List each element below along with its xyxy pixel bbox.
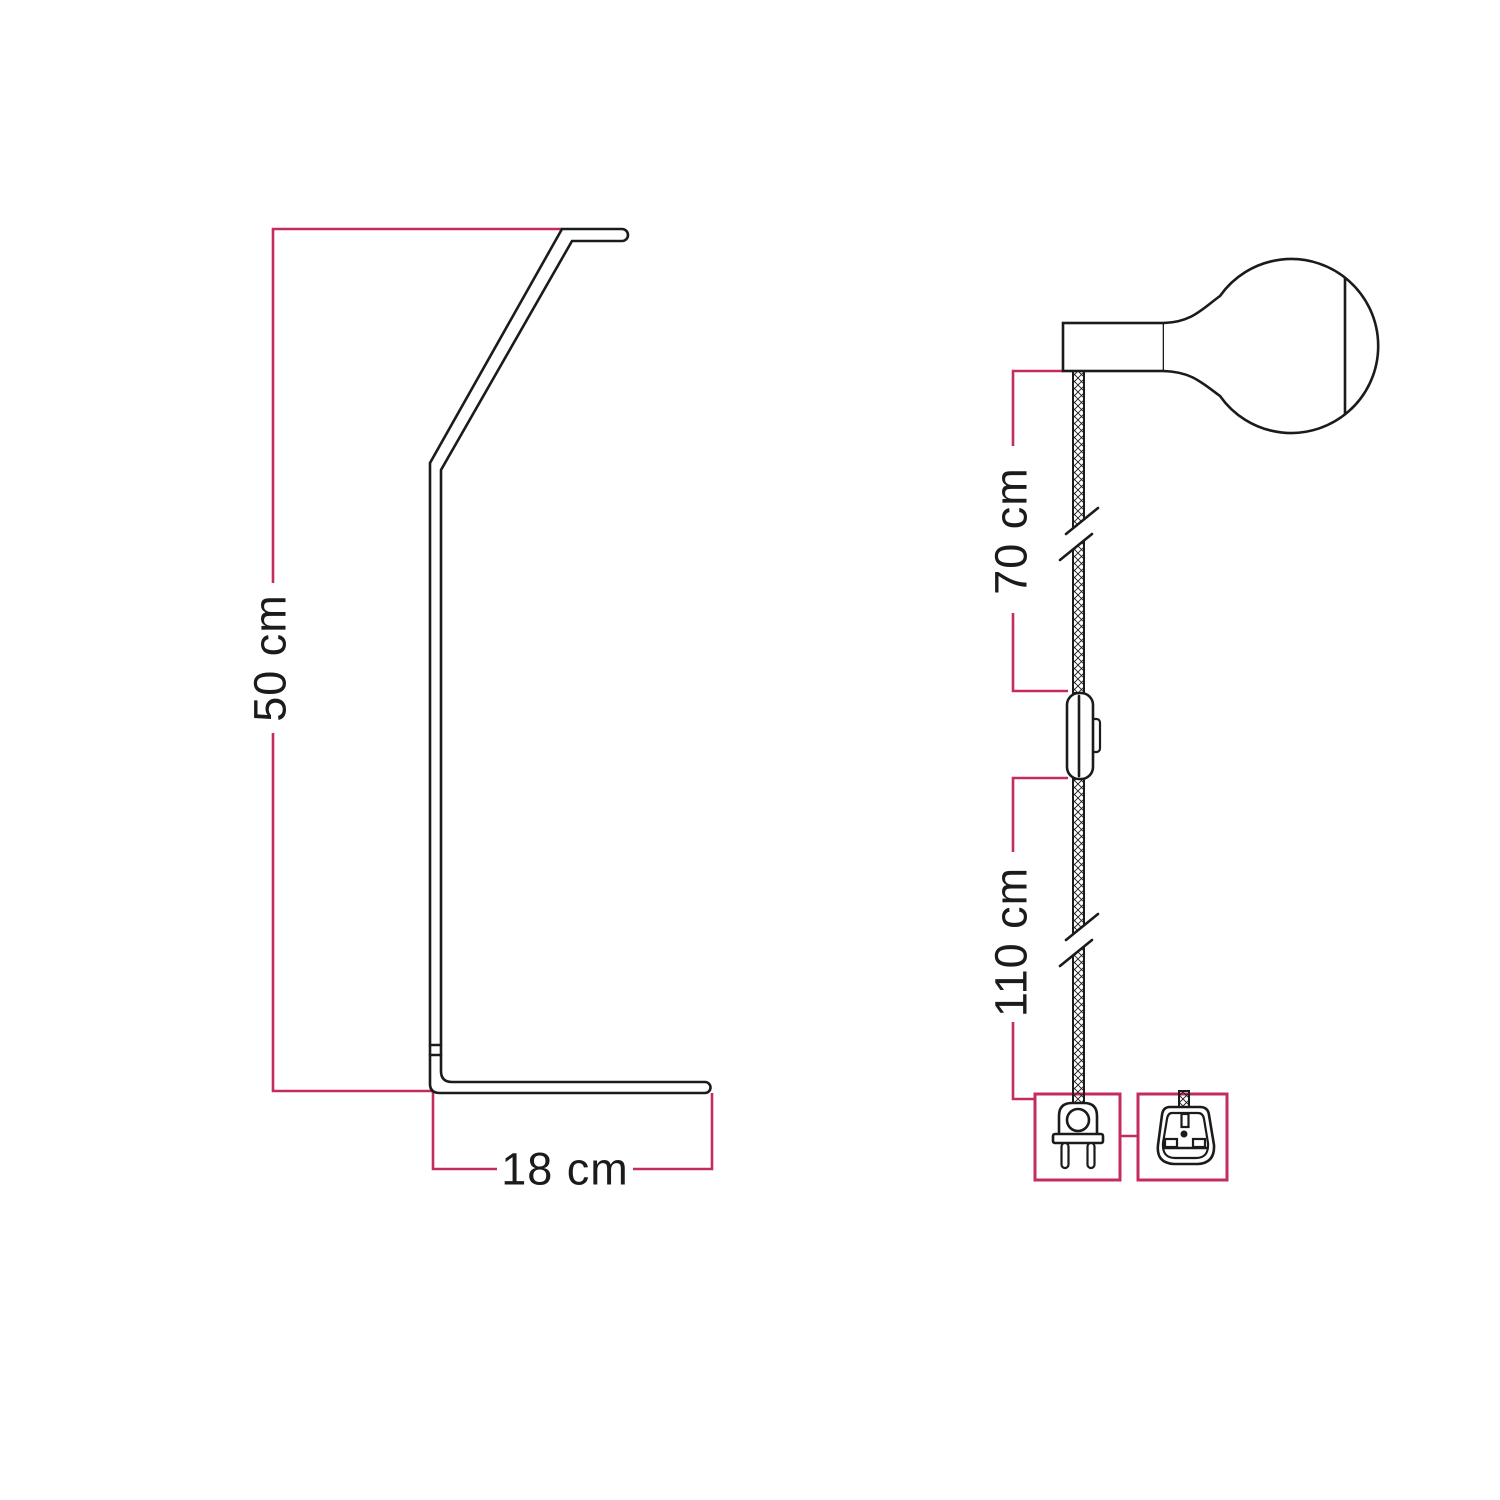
- inline-switch: [1067, 693, 1100, 779]
- uk-plug-icon: [1158, 1107, 1214, 1164]
- dimension-diagram: 50 cm 18 cm: [0, 0, 1500, 1500]
- lower-cable-dimension-label: 110 cm: [986, 867, 1037, 1017]
- stand-figure: 50 cm 18 cm: [245, 229, 713, 1195]
- bulb-icon: [1164, 259, 1378, 433]
- uk-plug-center-dot: [1181, 1131, 1188, 1138]
- uk-plug-right-slot: [1193, 1139, 1205, 1147]
- uk-plug-earth-slot: [1182, 1114, 1189, 1127]
- height-dimension-label: 50 cm: [245, 594, 296, 722]
- stand-outline: [430, 229, 711, 1093]
- dimension-diagram-page: 50 cm 18 cm: [0, 0, 1500, 1500]
- uk-plug-left-slot: [1165, 1139, 1177, 1147]
- upper-cable-dimension-label: 70 cm: [986, 467, 1037, 595]
- lamp-socket: [1063, 323, 1164, 371]
- base-dimension-label: 18 cm: [501, 1144, 629, 1195]
- height-dimension-line: [273, 229, 562, 1091]
- euro-plug-icon: [1053, 1103, 1103, 1168]
- pendant-figure: 70 cm 110 cm: [986, 259, 1379, 1180]
